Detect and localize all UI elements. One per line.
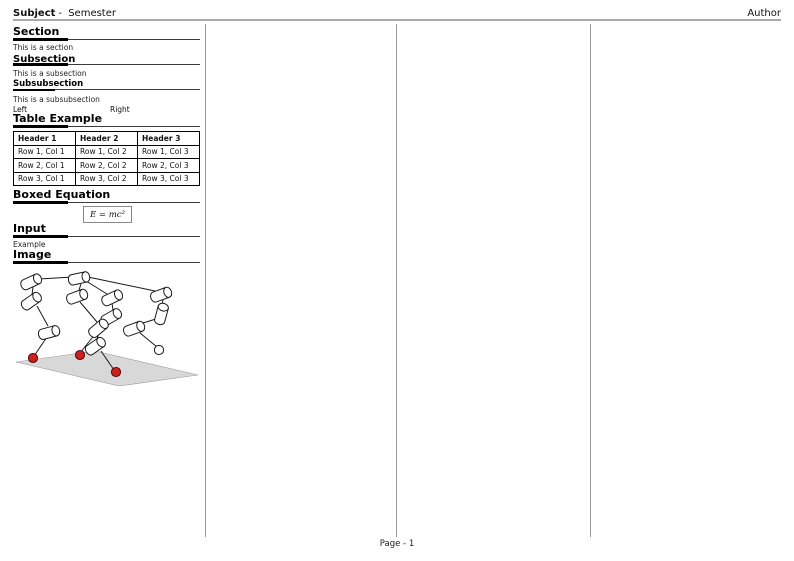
page-number: Page - 1 — [0, 539, 794, 549]
document-page: Subject- Semester Author Section This is… — [0, 0, 794, 561]
table-cell: Row 2, Col 1 — [14, 159, 76, 173]
table-cell: Row 1, Col 1 — [14, 145, 76, 159]
boxed-equation-heading: Boxed Equation — [13, 189, 200, 203]
table-row: Row 2, Col 1 Row 2, Col 2 Row 2, Col 3 — [14, 159, 200, 173]
table-row: Row 3, Col 1 Row 3, Col 2 Row 3, Col 3 — [14, 172, 200, 186]
table-header-cell: Header 3 — [138, 132, 200, 146]
example-table-head: Header 1 Header 2 Header 3 — [14, 132, 200, 146]
table-header-cell: Header 1 — [14, 132, 76, 146]
robot-foot-2 — [75, 350, 84, 359]
table-cell: Row 3, Col 2 — [76, 172, 138, 186]
section-heading: Section — [13, 26, 200, 40]
table-row: Row 1, Col 1 Row 1, Col 2 Row 1, Col 3 — [14, 145, 200, 159]
robot-end-ball — [154, 345, 163, 354]
semester-label: Semester — [68, 8, 116, 19]
input-heading: Input — [13, 223, 200, 237]
table-cell: Row 3, Col 1 — [14, 172, 76, 186]
example-table: Header 1 Header 2 Header 3 Row 1, Col 1 … — [13, 131, 200, 186]
table-cell: Row 1, Col 3 — [138, 145, 200, 159]
header-rule — [13, 19, 781, 21]
column-separator-2 — [396, 24, 397, 537]
column-separator-3 — [590, 24, 591, 537]
table-cell: Row 2, Col 2 — [76, 159, 138, 173]
subject-separator: - — [58, 8, 62, 19]
table-cell: Row 1, Col 2 — [76, 145, 138, 159]
ground-plane — [16, 351, 198, 386]
robot-foot-1 — [28, 353, 37, 362]
robot-foot-3 — [111, 367, 120, 376]
table-cell: Row 3, Col 3 — [138, 172, 200, 186]
table-example-heading: Table Example — [13, 113, 200, 127]
subsubsection-body: This is a subsubsection — [13, 95, 200, 104]
example-table-body: Row 1, Col 1 Row 1, Col 2 Row 1, Col 3 R… — [14, 145, 200, 186]
table-header-row: Header 1 Header 2 Header 3 — [14, 132, 200, 146]
subject-label: Subject — [13, 8, 55, 19]
table-cell: Row 2, Col 3 — [138, 159, 200, 173]
subsection-heading: Subsection — [13, 54, 200, 65]
image-heading: Image — [13, 249, 200, 263]
document-header: Subject- Semester Author — [13, 5, 781, 19]
author-label: Author — [747, 8, 781, 19]
equation-box: E = mc² — [83, 206, 132, 223]
robot-linkage-figure — [10, 267, 200, 386]
subsubsection-heading: Subsubsection — [13, 80, 200, 90]
section-body: This is a section — [13, 43, 200, 52]
header-left: Subject- Semester — [13, 8, 119, 19]
column-separator-1 — [205, 24, 206, 537]
subsection-body: This is a subsection — [13, 69, 200, 78]
table-header-cell: Header 2 — [76, 132, 138, 146]
